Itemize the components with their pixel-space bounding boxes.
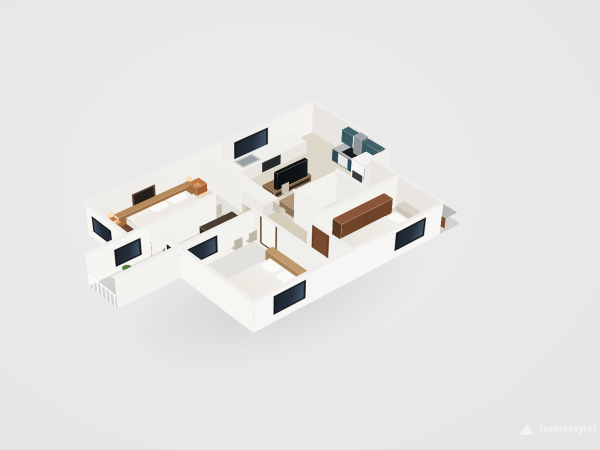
watermark-triangle-logo-icon [520, 424, 534, 435]
floorplan-render-canvas: homestyler [0, 0, 600, 450]
watermark-text: homestyler [540, 424, 597, 435]
watermark: homestyler [520, 424, 597, 435]
